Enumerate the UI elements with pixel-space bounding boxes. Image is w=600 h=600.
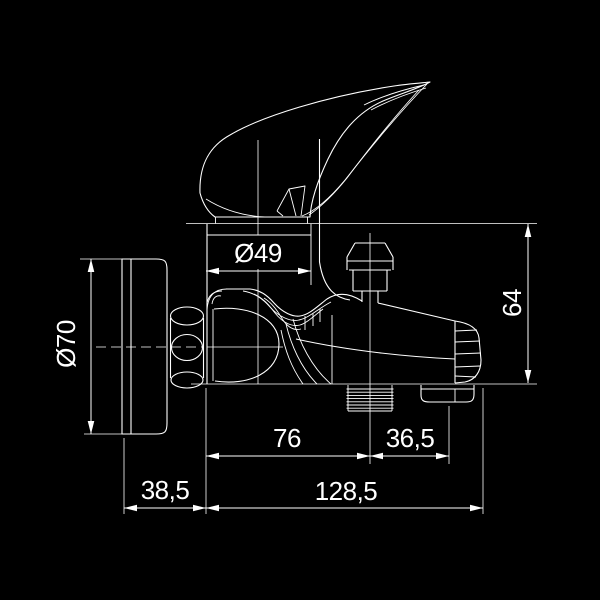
- dim-label-d70: Ø70: [51, 320, 81, 368]
- faucet-dimension-drawing: Ø49 Ø70 64 76 36,5 38,5 128,5: [0, 0, 600, 600]
- dim-label-d38-5: 38,5: [141, 475, 190, 505]
- technical-drawing-canvas: Ø49 Ø70 64 76 36,5 38,5 128,5: [0, 0, 600, 600]
- dim-label-d64: 64: [497, 289, 527, 317]
- dim-label-d128-5: 128,5: [315, 476, 378, 506]
- dim-label-d76: 76: [273, 423, 301, 453]
- dim-label-d36-5: 36,5: [386, 423, 435, 453]
- dim-label-d49: Ø49: [234, 238, 282, 268]
